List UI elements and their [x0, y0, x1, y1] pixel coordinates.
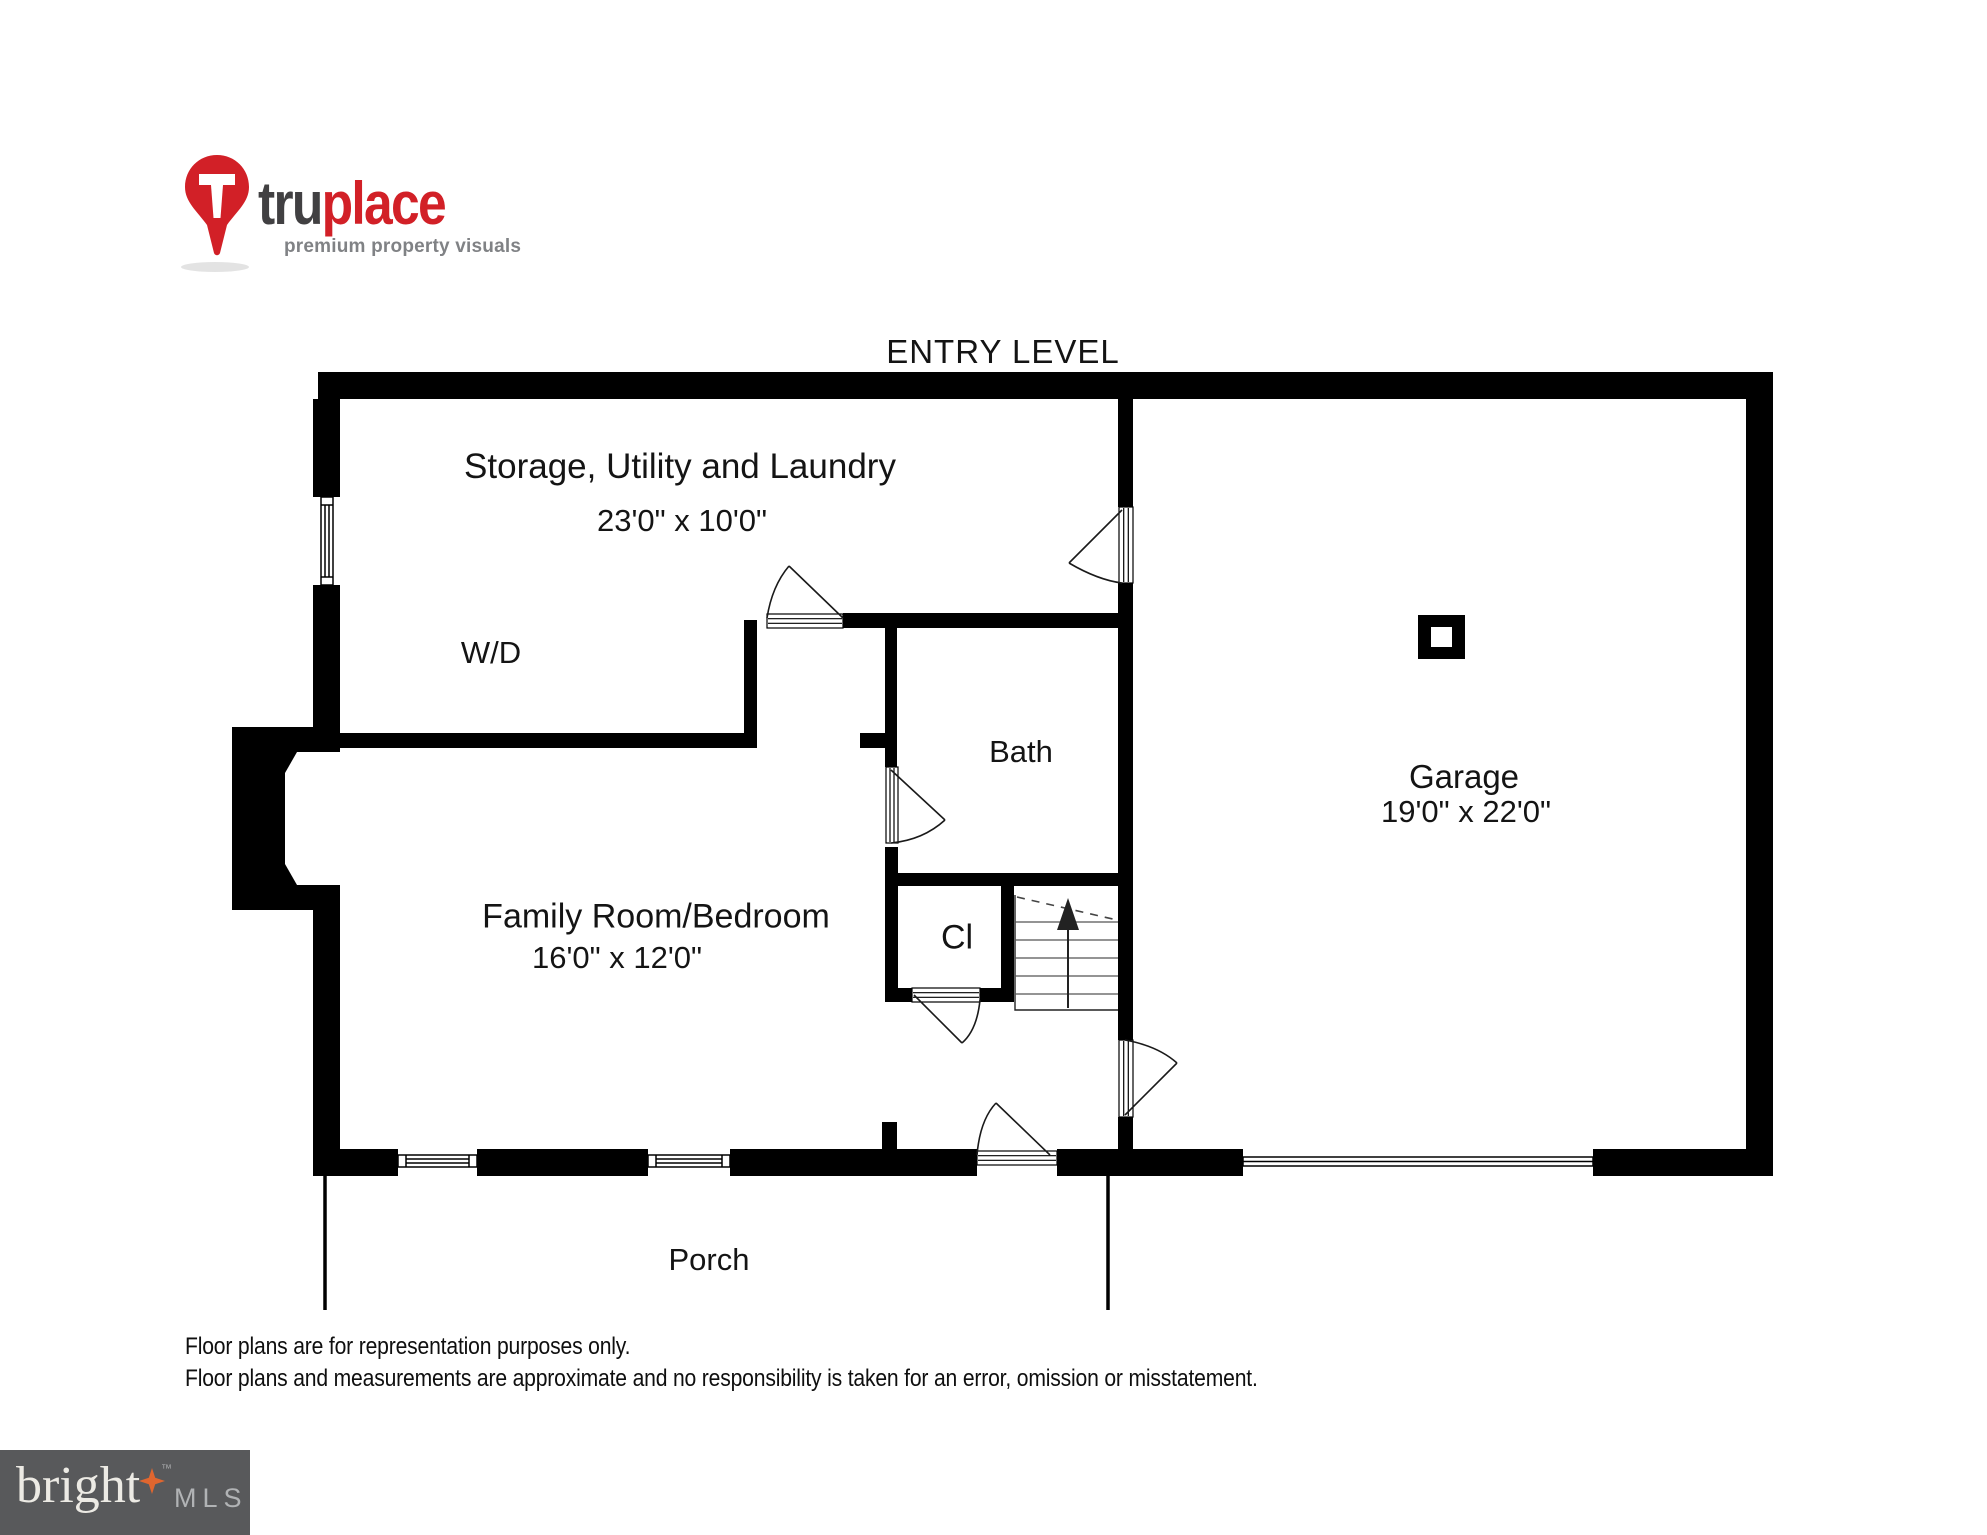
wall-hall-left [744, 620, 757, 733]
sill-bath-door [886, 767, 898, 843]
floorplan-page: truplace premium property visuals [0, 0, 1987, 1535]
door-bath [891, 770, 945, 843]
door-garage-storage [1069, 510, 1122, 583]
garage-post [1418, 615, 1465, 659]
sill-garage-storage-door [1119, 507, 1133, 583]
wall-right [1746, 399, 1773, 1176]
wall-left-mid [313, 585, 340, 727]
wall-divider-lower [1118, 1117, 1133, 1149]
sill-storage-hall-door [767, 614, 843, 628]
plan-title: ENTRY LEVEL [886, 333, 1120, 371]
wall-bath-bottom [885, 873, 1133, 886]
sill-closet-door [912, 988, 980, 1002]
wall-bottom-5 [1593, 1149, 1773, 1176]
garage-door-opening [1243, 1157, 1593, 1166]
room-label-family: Family Room/Bedroom [482, 898, 830, 937]
door-sills [767, 507, 1133, 1165]
fireplace [232, 727, 341, 910]
wall-divider-mid [1118, 583, 1133, 1040]
wall-bath-left-upper [885, 628, 897, 767]
sill-garage-side-door [1119, 1040, 1133, 1117]
stairs [1015, 895, 1118, 1010]
room-label-garage: Garage [1409, 758, 1519, 796]
room-label-bath: Bath [989, 734, 1053, 770]
wall-bath-left-lower [885, 847, 898, 1002]
windows [321, 497, 1593, 1167]
room-dims-storage: 23'0" x 10'0" [597, 503, 767, 539]
wall-bath-top [843, 613, 1133, 628]
stairs-treads [1015, 922, 1118, 994]
bright-wordmark: bright [16, 1460, 140, 1512]
window-family-room-1 [398, 1155, 477, 1167]
door-porch [977, 1103, 1050, 1155]
wall-storage-family [340, 733, 757, 748]
wall-bottom-2 [477, 1149, 648, 1176]
fireplace-firebox [285, 752, 341, 885]
disclaimer-line-1: Floor plans are for representation purpo… [185, 1333, 630, 1361]
bright-mls-logo: bright ™ MLS [0, 1450, 250, 1535]
wall-left-lower [313, 910, 340, 1149]
room-label-porch: Porch [669, 1242, 750, 1278]
wall-closet-right [1001, 886, 1014, 1002]
stairs-up-arrow-icon [1057, 898, 1079, 930]
door-swings [767, 510, 1177, 1155]
exterior-walls [313, 372, 1773, 1176]
wall-bottom-1 [313, 1149, 398, 1176]
wall-bottom-3 [730, 1149, 977, 1176]
sill-porch-door [977, 1151, 1057, 1165]
door-storage-hall [767, 566, 843, 618]
wall-left-upper [313, 399, 340, 497]
wall-top [318, 372, 1773, 399]
disclaimer-line-2: Floor plans and measurements are approxi… [185, 1365, 1258, 1393]
room-dims-garage: 19'0" x 22'0" [1381, 794, 1551, 830]
trademark-symbol: ™ [161, 1463, 172, 1475]
room-label-closet: Cl [941, 919, 973, 958]
window-family-room-2 [648, 1155, 730, 1167]
wall-bottom-4 [1057, 1149, 1243, 1176]
mls-wordmark: MLS [174, 1483, 248, 1514]
room-label-storage: Storage, Utility and Laundry [464, 447, 896, 487]
wall-divider-upper [1118, 399, 1133, 507]
room-dims-family: 16'0" x 12'0" [532, 940, 702, 976]
window-left-wall [321, 497, 333, 585]
wall-closet-bottom-left [885, 988, 912, 1002]
label-washer-dryer: W/D [461, 635, 521, 671]
wall-stub-porch-door [882, 1122, 897, 1149]
wall-stub-hall [860, 733, 886, 748]
